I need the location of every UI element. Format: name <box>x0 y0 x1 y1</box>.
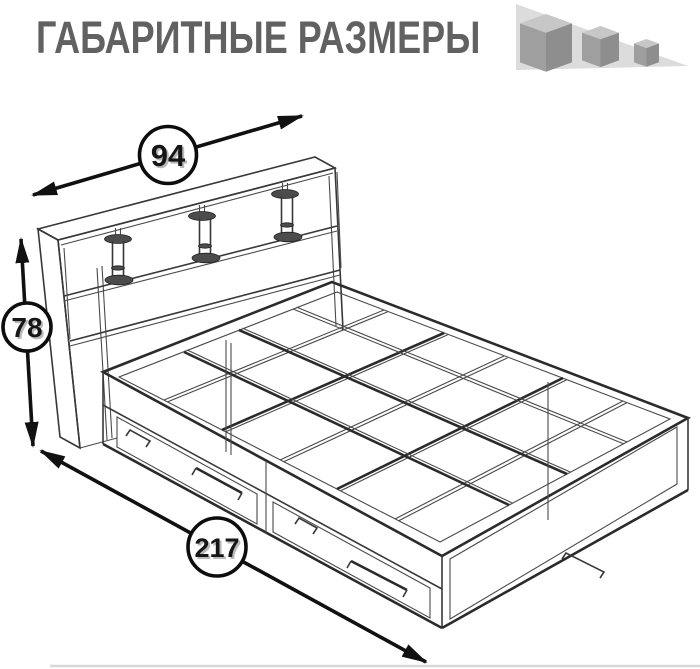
headboard-post-left <box>105 228 134 285</box>
headboard-post-middle <box>189 205 221 263</box>
bed-platform <box>103 282 688 628</box>
dimension-diagram: 94 78 217 <box>0 0 700 669</box>
platform-front-face <box>103 372 442 628</box>
dimension-arrows <box>21 116 426 662</box>
headboard-post-right <box>272 183 303 242</box>
rails-longitudinal <box>184 307 628 505</box>
bed-drawing <box>38 157 688 628</box>
drawer-1 <box>117 417 257 524</box>
length-dimension-value: 217 <box>194 533 239 563</box>
cubes-logo-icon <box>516 4 688 72</box>
drawer-2 <box>273 502 430 618</box>
width-dimension-value: 94 <box>151 138 186 173</box>
height-dimension-value: 78 <box>11 312 42 343</box>
platform-foot-face <box>442 418 688 628</box>
